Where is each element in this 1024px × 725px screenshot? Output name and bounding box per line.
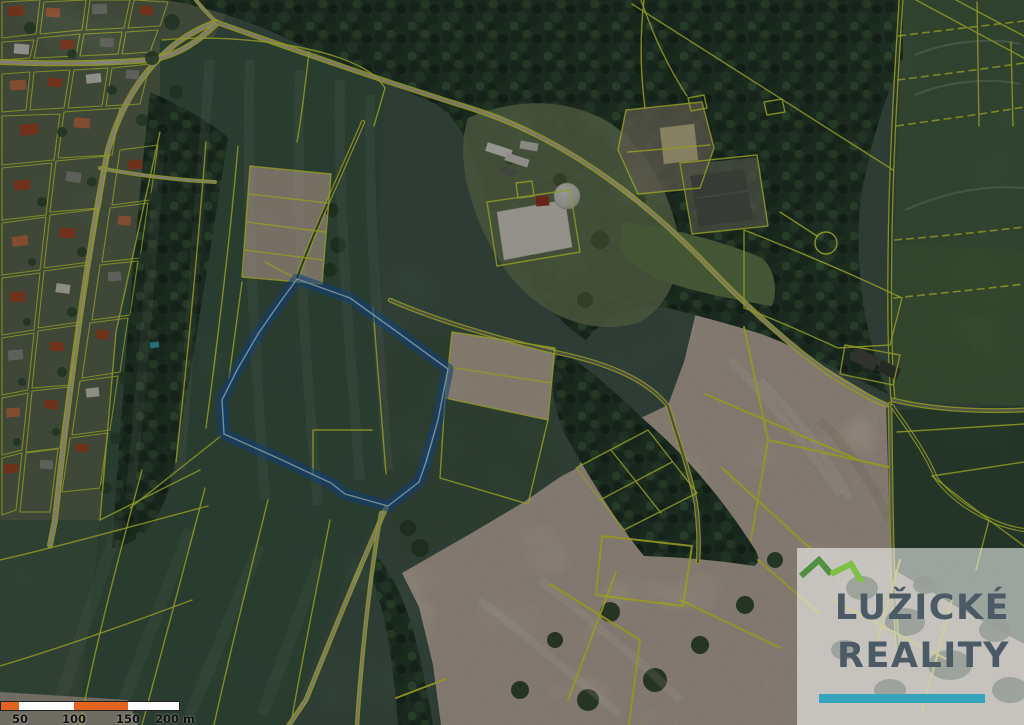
scale-label-200: 200 m xyxy=(155,712,195,725)
scale-bar-segments xyxy=(0,701,180,711)
watermark-line2: REALITY xyxy=(835,632,1010,680)
agency-watermark: LUŽICKÉ REALITY xyxy=(797,548,1024,725)
scale-label-50: 50 xyxy=(12,712,28,725)
map-canvas[interactable]: 50 100 150 200 m LUŽICKÉ REALITY xyxy=(0,0,1024,725)
map-scale-bar: 50 100 150 200 m xyxy=(0,701,200,725)
watermark-accent-bar xyxy=(819,694,985,703)
watermark-line1: LUŽICKÉ xyxy=(835,584,1010,632)
agency-logo-icon xyxy=(797,548,877,582)
scale-label-150: 150 xyxy=(116,712,140,725)
scale-label-100: 100 xyxy=(62,712,86,725)
